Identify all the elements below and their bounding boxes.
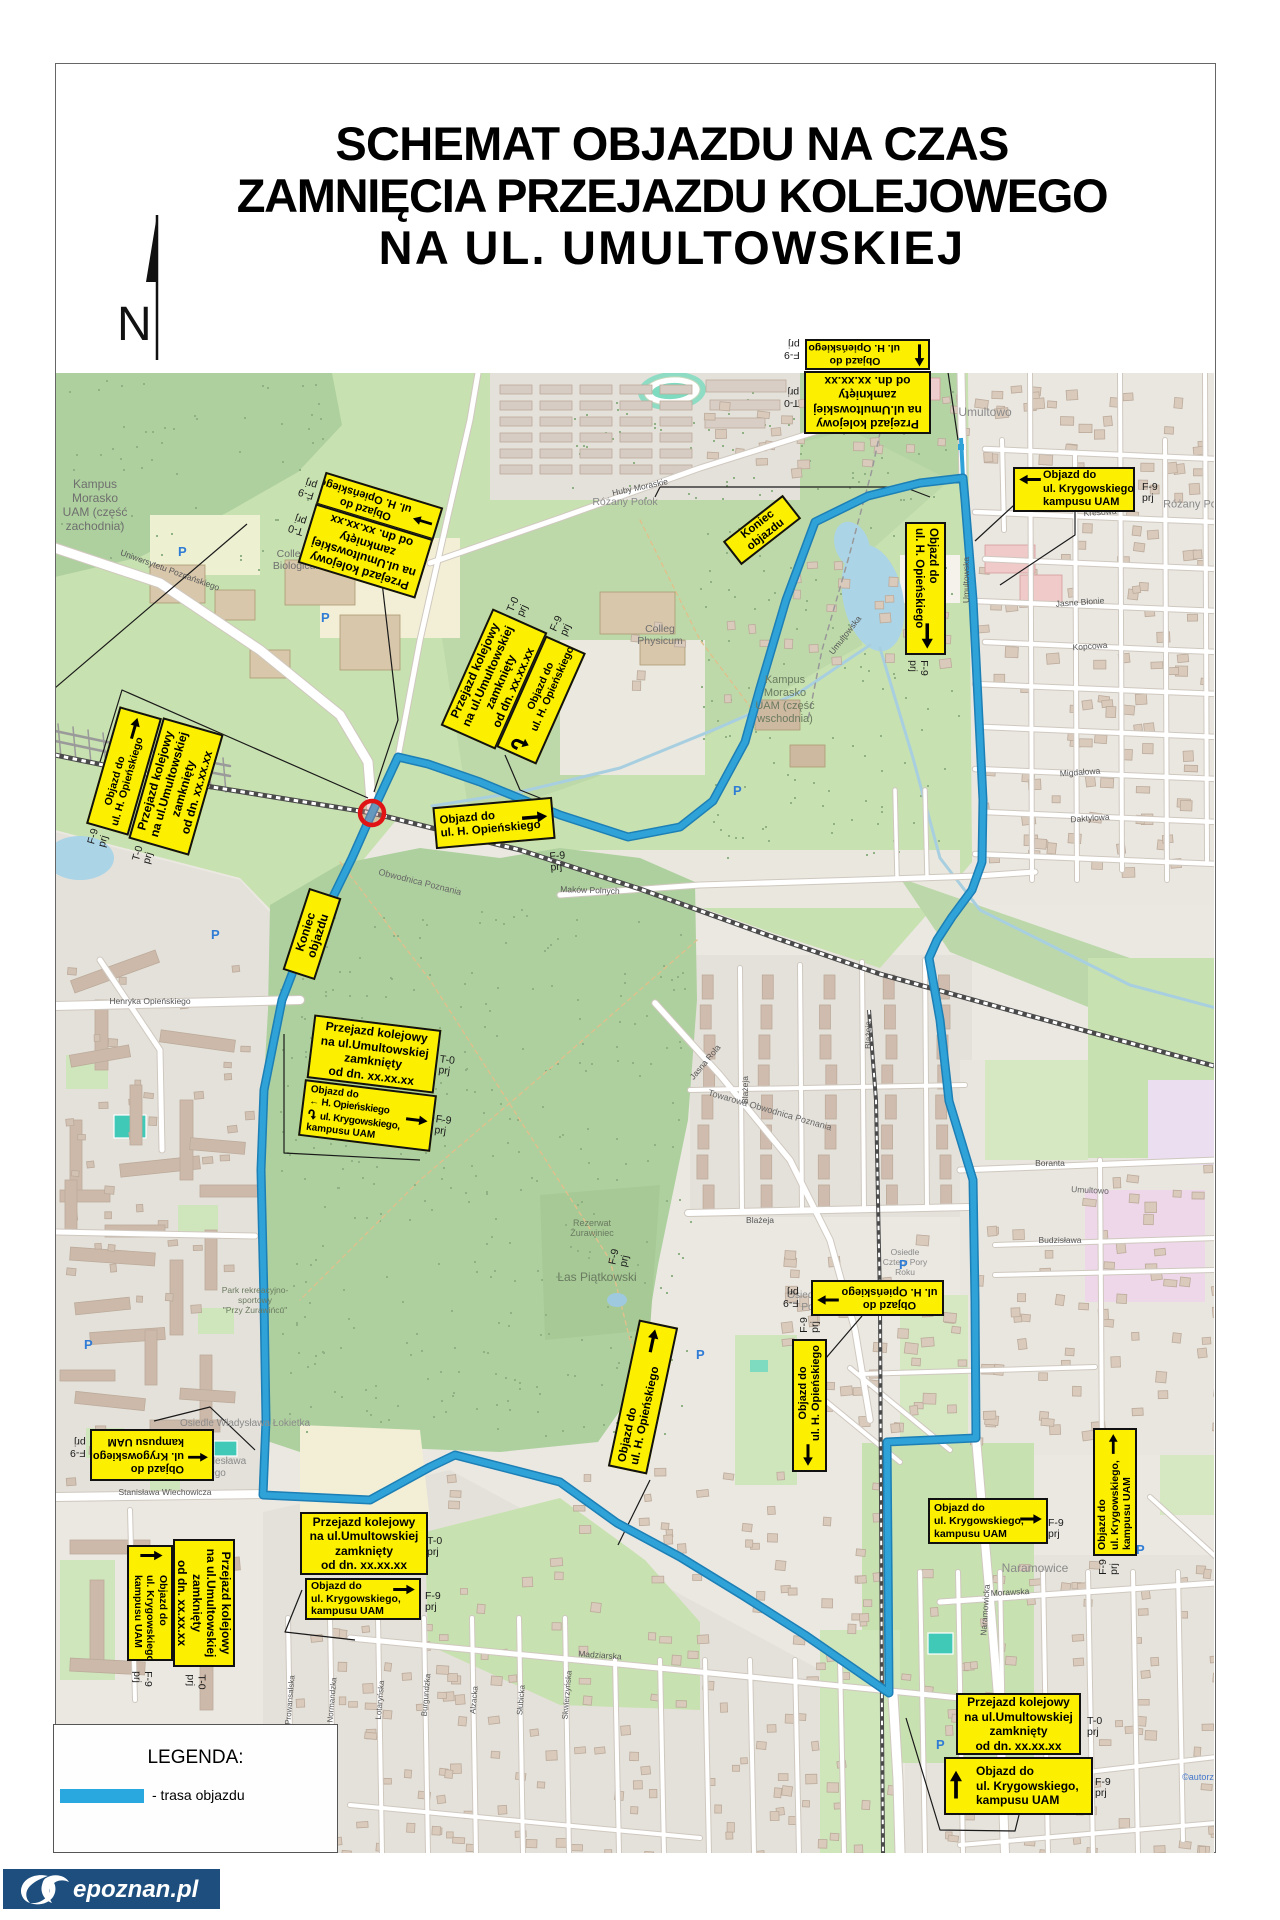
svg-text:N: N xyxy=(117,298,152,351)
